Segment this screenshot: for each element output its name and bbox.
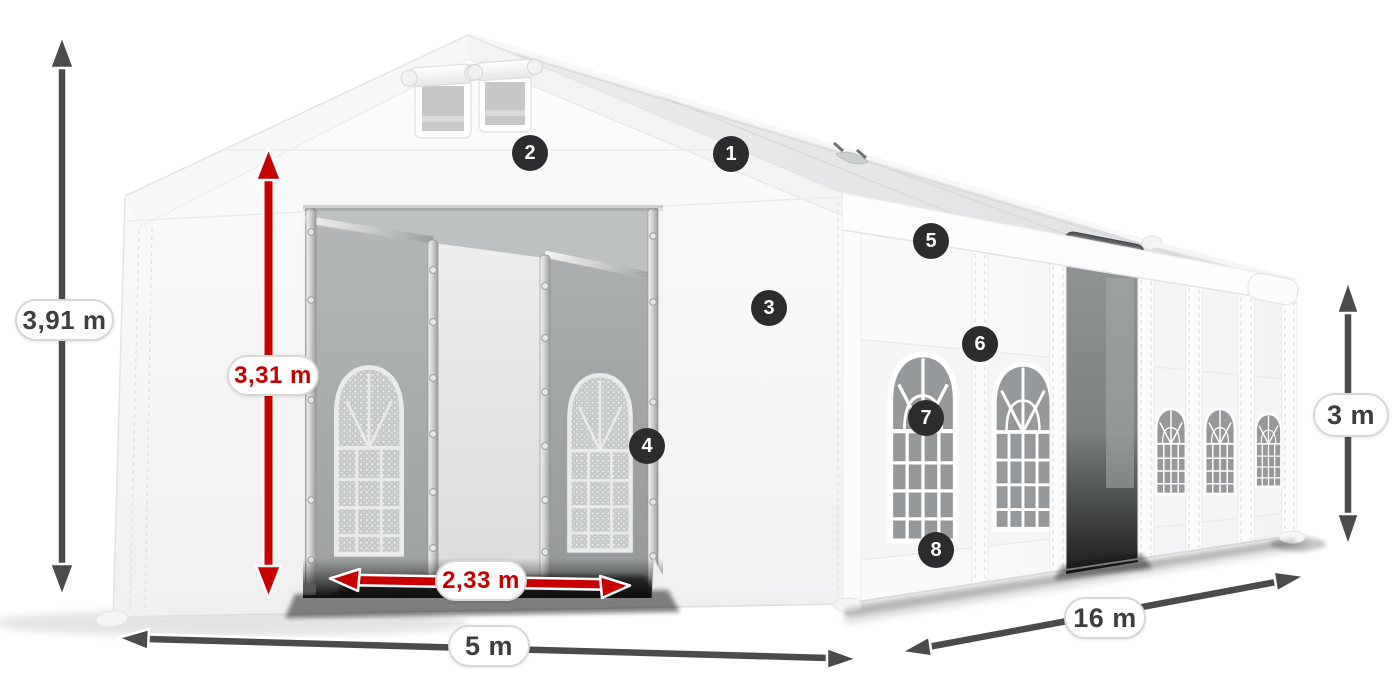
marker-7: 7 <box>908 400 944 436</box>
vent-window-glass <box>485 82 525 125</box>
dimension-label-front-width: 5 m <box>448 625 530 667</box>
dimension-label-inner-height: 3,31 m <box>227 355 319 396</box>
side-window <box>890 355 955 542</box>
dimension-label-side-height: 3 m <box>1313 393 1389 437</box>
entrance-door-window <box>569 375 630 550</box>
side-window <box>994 364 1052 529</box>
marker-5: 5 <box>913 223 949 259</box>
marker-4: 4 <box>629 428 665 464</box>
side-window <box>1256 414 1281 487</box>
marker-2: 2 <box>512 135 548 171</box>
marker-8: 8 <box>918 532 954 568</box>
side-door-opening <box>1063 231 1145 574</box>
tent-dimension-diagram: 3,91 m 3,31 m 2,33 m 5 m 16 m 3 m 1 2 3 … <box>0 0 1400 700</box>
side-window <box>1156 409 1186 494</box>
front-entrance-interior <box>296 205 684 600</box>
vent-window-glass <box>422 86 464 131</box>
side-window <box>1205 409 1235 494</box>
tent-illustration <box>0 0 1400 700</box>
dimension-label-side-length: 16 m <box>1064 597 1146 639</box>
marker-3: 3 <box>751 290 787 326</box>
entrance-door-window <box>336 368 401 555</box>
dimension-label-entrance-width: 2,33 m <box>435 560 527 601</box>
marker-1: 1 <box>713 136 749 172</box>
marker-6: 6 <box>962 326 998 362</box>
dimension-label-total-height: 3,91 m <box>15 299 114 341</box>
